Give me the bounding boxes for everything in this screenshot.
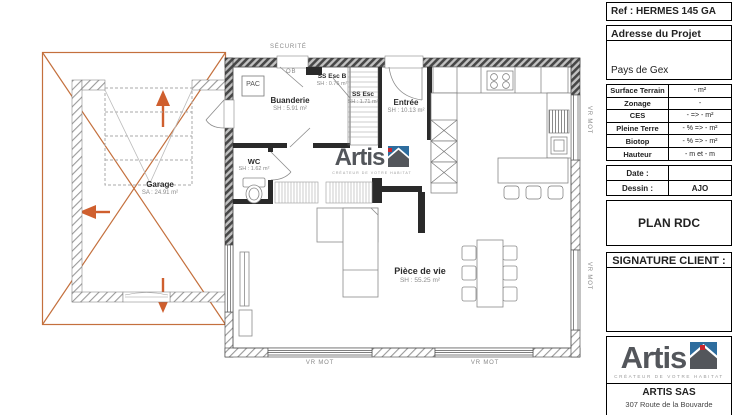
table-row: CES - => - m² <box>607 110 731 123</box>
kitchen <box>431 67 571 199</box>
direction-arrows <box>79 90 170 313</box>
artis-logo-dot <box>388 148 392 152</box>
staircase <box>348 67 378 145</box>
fridge-icon <box>549 110 569 133</box>
garage-door <box>105 88 192 185</box>
table-row: Biotop - % => - m² <box>607 135 731 148</box>
garage-walls <box>72 80 226 302</box>
floor-plan-sheet: SÉCURITÉ OB PAC Buanderie SH : 5.91 m² S… <box>0 0 750 415</box>
stool-icon <box>548 186 563 199</box>
floor-plan-drawing <box>0 0 605 415</box>
table-row: Zonage - <box>607 98 731 111</box>
table-row: Date : <box>607 166 731 181</box>
address-box: Adresse du Projet Pays de Gex <box>606 25 732 80</box>
site-info-table: Surface Terrain - m² Zonage - CES - => -… <box>606 84 732 161</box>
table-row: Dessin : AJO <box>607 181 731 195</box>
plan-title-box: PLAN RDC <box>606 200 732 246</box>
meta-table: Date : Dessin : AJO <box>606 165 732 196</box>
company-address: 307 Route de la Bouvarde <box>607 400 731 409</box>
signature-box-title: SIGNATURE CLIENT : <box>607 253 731 268</box>
vr-mot-label: VR MOT <box>280 360 360 366</box>
company-box: Artis CRÉATEUR DE VOTRE HABITAT ARTIS SA… <box>606 336 732 415</box>
sofa <box>317 208 378 297</box>
address-value: Pays de Gex <box>611 65 668 76</box>
artis-logo-text: Artis <box>335 146 385 170</box>
house-outer-walls <box>225 58 580 357</box>
artis-logo-text: Artis <box>621 342 687 373</box>
stool-icon <box>504 186 519 199</box>
cooktop-icon <box>487 71 513 90</box>
securite-label: SÉCURITÉ <box>270 44 307 50</box>
vr-mot-label: VR MOT <box>445 360 525 366</box>
table-row: Hauteur - m et - m <box>607 148 731 161</box>
artis-logo: Artis <box>607 342 731 373</box>
address-box-title: Adresse du Projet <box>607 26 731 41</box>
dining-set <box>462 240 517 307</box>
ob-label: OB <box>286 69 296 75</box>
vr-mot-label: VR MOT <box>586 262 592 290</box>
house-inner-outline <box>233 67 571 348</box>
garage-exclusion-annotation <box>43 53 226 325</box>
table-row: Pleine Terre - % => - m² <box>607 123 731 136</box>
windows <box>225 95 580 357</box>
artis-tagline: CRÉATEUR DE VOTRE HABITAT <box>326 171 418 175</box>
artis-logo-dot <box>700 345 705 350</box>
closets <box>275 182 372 203</box>
signature-box: SIGNATURE CLIENT : <box>606 252 732 332</box>
pac-unit <box>242 76 264 96</box>
vr-mot-label: VR MOT <box>586 106 592 134</box>
ref-box: Ref : HERMES 145 GA <box>606 2 732 21</box>
radiators <box>239 252 252 336</box>
table-row: Surface Terrain - m² <box>607 85 731 98</box>
artis-watermark: Artis CRÉATEUR DE VOTRE HABITAT <box>326 146 418 175</box>
stool-icon <box>526 186 541 199</box>
company-name: ARTIS SAS <box>607 383 731 398</box>
